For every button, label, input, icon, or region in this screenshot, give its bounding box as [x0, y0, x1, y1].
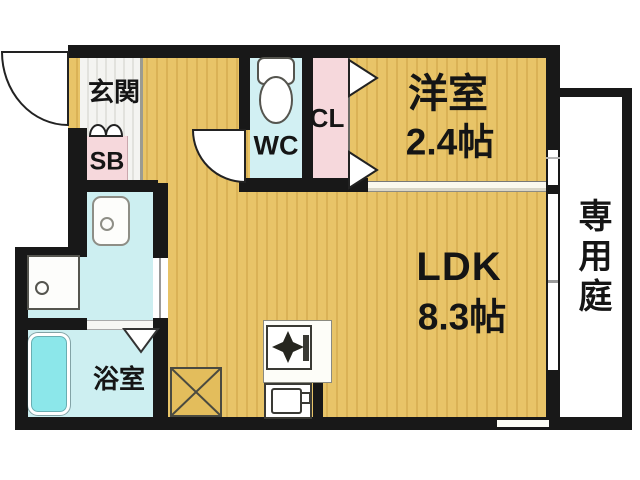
- floor-plan: 玄関 SB WC CL 洋室 2.4帖 LDK 8.3帖 浴室 専用庭: [0, 0, 640, 480]
- hatched-box: [170, 367, 222, 417]
- entrance-door-swing: [2, 52, 68, 125]
- bathroom-door-opening: [87, 320, 153, 330]
- wall-east-upper: [546, 58, 560, 150]
- wall-bath-divider: [15, 318, 87, 330]
- kitchen-sink-basin: [271, 388, 302, 414]
- wc-room-floor: [250, 58, 302, 179]
- ldk-label: LDK: [416, 247, 501, 287]
- wall-north: [68, 45, 560, 58]
- sliding-door-western-room: [368, 181, 546, 192]
- sliding-glass-door-stile: [548, 280, 558, 283]
- western-room-label: 洋室: [408, 74, 488, 114]
- wc-label: WC: [254, 133, 299, 160]
- window-east-small-mullion: [546, 157, 560, 159]
- wall-washroom-east-lower: [153, 318, 168, 430]
- wall-kitchen-stub: [313, 375, 323, 430]
- window-south: [497, 417, 549, 430]
- exterior-notch: [0, 183, 70, 247]
- bathtub-icon: [28, 333, 70, 415]
- kitchen-faucet-icon: [300, 392, 311, 404]
- bathroom-label: 浴室: [93, 366, 145, 392]
- western-room-size-label: 2.4帖: [406, 124, 494, 161]
- private-garden-label: 専用庭: [575, 198, 609, 318]
- genkan-label: 玄関: [88, 79, 140, 105]
- ldk-size-label: 8.3帖: [418, 299, 506, 336]
- wall-under-shoe-box: [68, 180, 158, 192]
- genkan-step-edge: [140, 58, 143, 183]
- closet-label: CL: [310, 105, 345, 131]
- wall-east-mid-post: [546, 185, 560, 194]
- washing-machine-drain-icon: [35, 281, 49, 295]
- wall-wc-west: [239, 58, 250, 130]
- wall-under-wc-closet: [239, 178, 368, 192]
- stove-grill-icon: [303, 335, 309, 361]
- shoe-box-label: SB: [90, 150, 125, 175]
- washroom-door-leaf: [159, 258, 161, 318]
- washing-machine-pan-icon: [27, 255, 80, 310]
- window-east-small: [546, 150, 560, 185]
- wall-washroom-east-upper: [153, 183, 168, 258]
- washbasin-drain-icon: [100, 217, 114, 231]
